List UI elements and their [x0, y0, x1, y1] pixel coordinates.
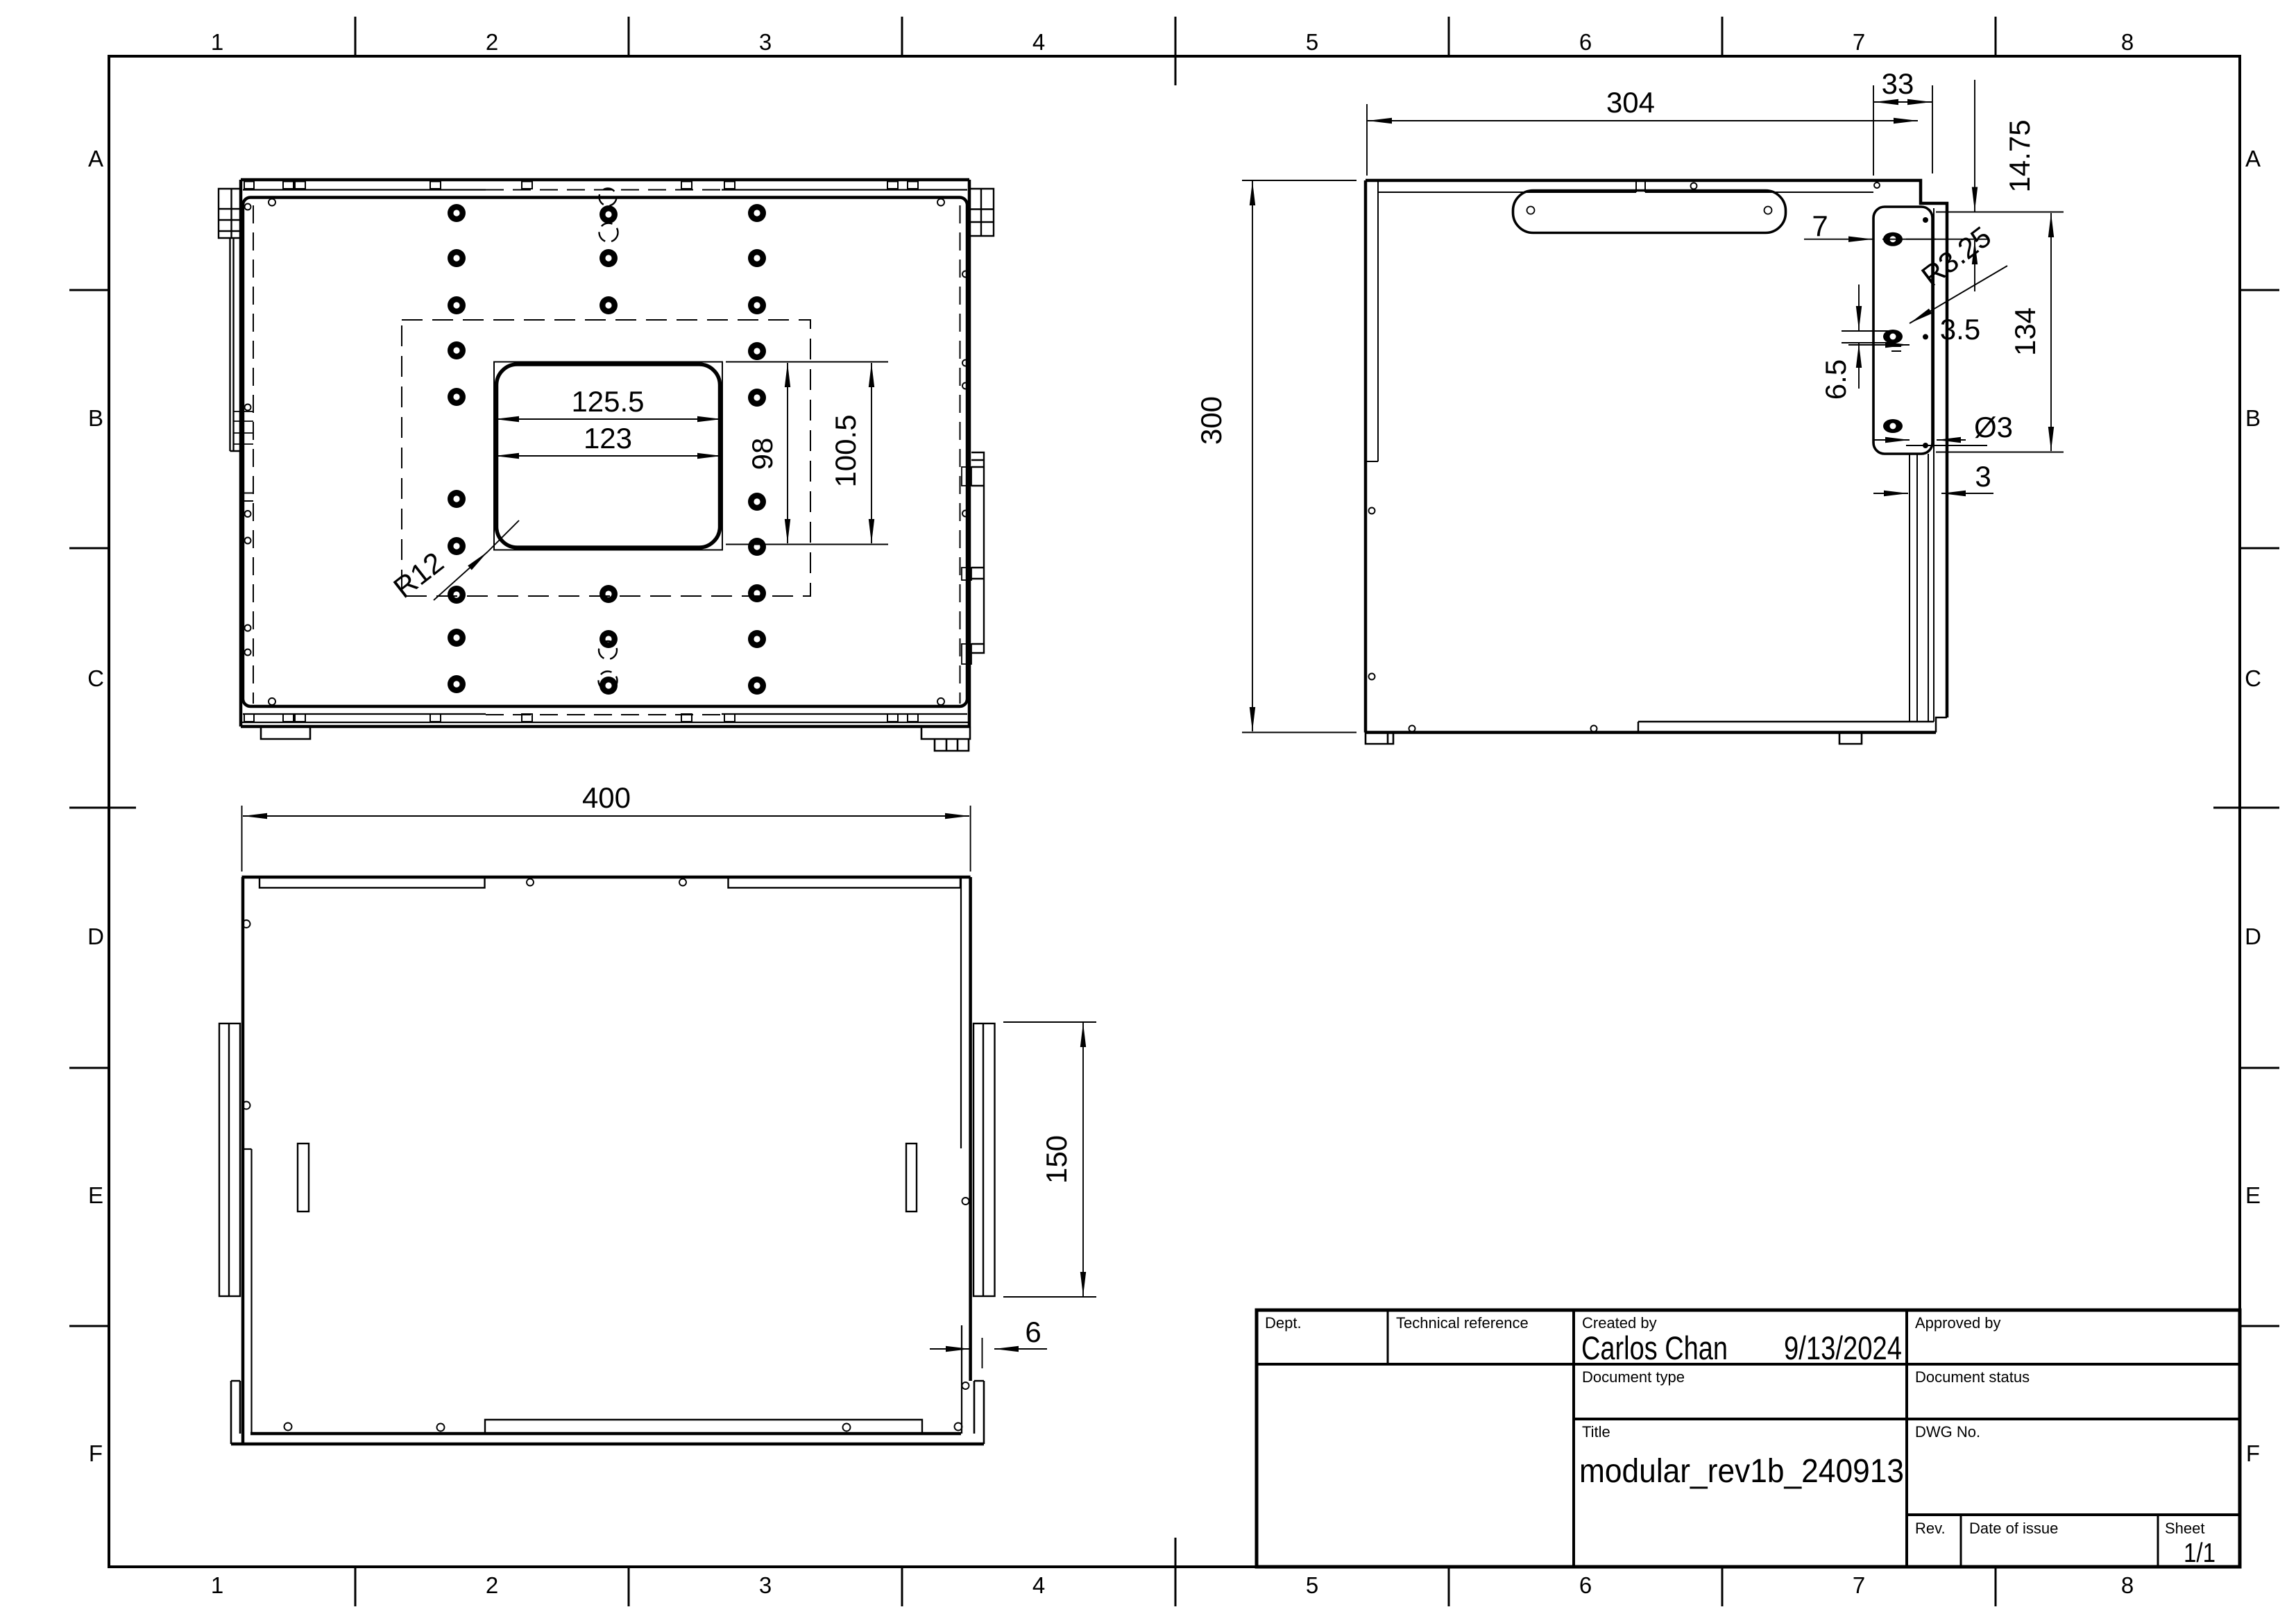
svg-text:C: C	[2245, 665, 2261, 691]
svg-text:1/1: 1/1	[2184, 1538, 2216, 1568]
svg-text:8: 8	[2121, 29, 2134, 55]
svg-text:33: 33	[1882, 67, 1914, 100]
svg-text:D: D	[87, 924, 104, 949]
svg-text:6: 6	[1579, 29, 1592, 55]
svg-text:7: 7	[1812, 210, 1828, 242]
svg-text:98: 98	[746, 438, 779, 470]
svg-text:14.75: 14.75	[2003, 119, 2036, 192]
svg-text:3: 3	[1975, 460, 1991, 493]
svg-text:3.5: 3.5	[1940, 313, 1980, 346]
svg-text:D: D	[2245, 924, 2261, 949]
svg-text:1: 1	[211, 1572, 223, 1598]
svg-text:134: 134	[2009, 307, 2041, 356]
svg-text:125.5: 125.5	[571, 385, 644, 418]
svg-text:Sheet: Sheet	[2165, 1520, 2205, 1537]
svg-text:4: 4	[1032, 1572, 1045, 1598]
svg-text:7: 7	[1853, 29, 1865, 55]
svg-text:1: 1	[211, 29, 223, 55]
svg-text:Date of issue: Date of issue	[1969, 1520, 2058, 1537]
svg-text:Rev.: Rev.	[1915, 1520, 1946, 1537]
svg-text:6: 6	[1579, 1572, 1592, 1598]
svg-text:E: E	[2245, 1182, 2261, 1208]
svg-text:DWG No.: DWG No.	[1915, 1423, 1980, 1441]
svg-text:123: 123	[584, 422, 632, 454]
svg-text:B: B	[88, 405, 103, 431]
svg-text:5: 5	[1306, 1572, 1318, 1598]
svg-text:C: C	[87, 665, 104, 691]
svg-text:4: 4	[1032, 29, 1045, 55]
svg-text:100.5: 100.5	[829, 414, 862, 487]
svg-text:3: 3	[759, 29, 772, 55]
svg-text:400: 400	[582, 781, 631, 814]
svg-text:A: A	[88, 146, 103, 171]
svg-text:3: 3	[759, 1572, 772, 1598]
svg-text:6.5: 6.5	[1819, 359, 1852, 400]
svg-text:5: 5	[1306, 29, 1318, 55]
svg-text:Document type: Document type	[1582, 1368, 1685, 1386]
svg-text:300: 300	[1195, 396, 1227, 445]
svg-text:Dept.: Dept.	[1265, 1314, 1302, 1332]
svg-text:150: 150	[1040, 1135, 1073, 1184]
svg-text:7: 7	[1853, 1572, 1865, 1598]
svg-text:F: F	[89, 1441, 103, 1466]
svg-text:Title: Title	[1582, 1423, 1610, 1441]
svg-text:modular_rev1b_240913: modular_rev1b_240913	[1579, 1453, 1904, 1490]
svg-text:B: B	[2245, 405, 2261, 431]
svg-text:2: 2	[486, 1572, 498, 1598]
svg-text:Technical reference: Technical reference	[1396, 1314, 1529, 1332]
svg-text:2: 2	[486, 29, 498, 55]
svg-text:6: 6	[1025, 1316, 1041, 1348]
svg-text:8: 8	[2121, 1572, 2134, 1598]
svg-text:F: F	[2246, 1441, 2260, 1466]
svg-text:A: A	[2245, 146, 2261, 171]
svg-text:E: E	[88, 1182, 103, 1208]
svg-text:Ø3: Ø3	[1974, 411, 2013, 443]
svg-text:Document status: Document status	[1915, 1368, 2030, 1386]
svg-text:Approved by: Approved by	[1915, 1314, 2001, 1332]
svg-text:9/13/2024: 9/13/2024	[1784, 1329, 1902, 1366]
svg-text:Carlos Chan: Carlos Chan	[1581, 1329, 1728, 1366]
svg-text:304: 304	[1606, 86, 1655, 119]
